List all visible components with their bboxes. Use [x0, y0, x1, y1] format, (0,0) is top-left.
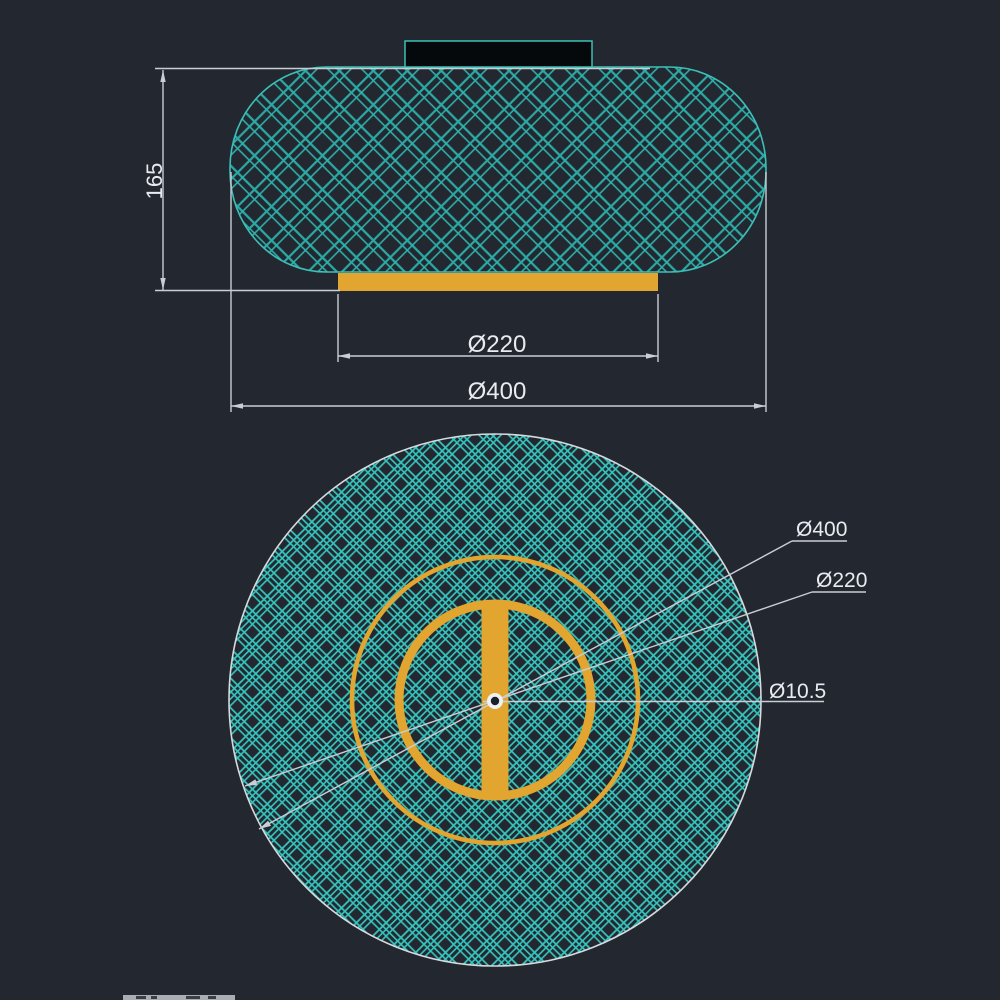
arrow-right-icon: [754, 403, 766, 408]
arrow-left-icon: [338, 353, 350, 358]
arrow-right-icon: [646, 353, 658, 358]
center-hole: [491, 697, 499, 705]
label-220: Ø220: [816, 569, 867, 592]
mount-plate: [405, 41, 592, 68]
dim-220-label: Ø220: [468, 331, 527, 358]
arrow-left-icon: [231, 403, 243, 408]
bottom-view: Ø400 Ø220 Ø10.5: [229, 434, 867, 966]
diffuser-rim-bar: [338, 273, 658, 291]
dim-165-label: 165: [142, 163, 167, 200]
label-400: Ø400: [796, 518, 847, 541]
watermark-strip: [123, 995, 235, 1000]
cad-drawing-canvas: 165 Ø220 Ø400: [0, 0, 1000, 1000]
arrow-up-icon: [160, 70, 165, 82]
cad-drawing: 165 Ø220 Ø400: [0, 0, 1000, 1000]
label-hole: Ø10.5: [769, 680, 826, 703]
watermark-marks: [136, 996, 146, 999]
dim-220-top: Ø220: [338, 294, 658, 362]
watermark-marks: [186, 996, 200, 999]
top-view: 165 Ø220 Ø400: [142, 41, 766, 412]
watermark-marks: [151, 996, 157, 999]
lamp-body-hatch: [230, 67, 766, 272]
arrow-down-icon: [160, 278, 165, 290]
dim-400-label: Ø400: [468, 378, 527, 405]
watermark-marks: [208, 996, 216, 999]
